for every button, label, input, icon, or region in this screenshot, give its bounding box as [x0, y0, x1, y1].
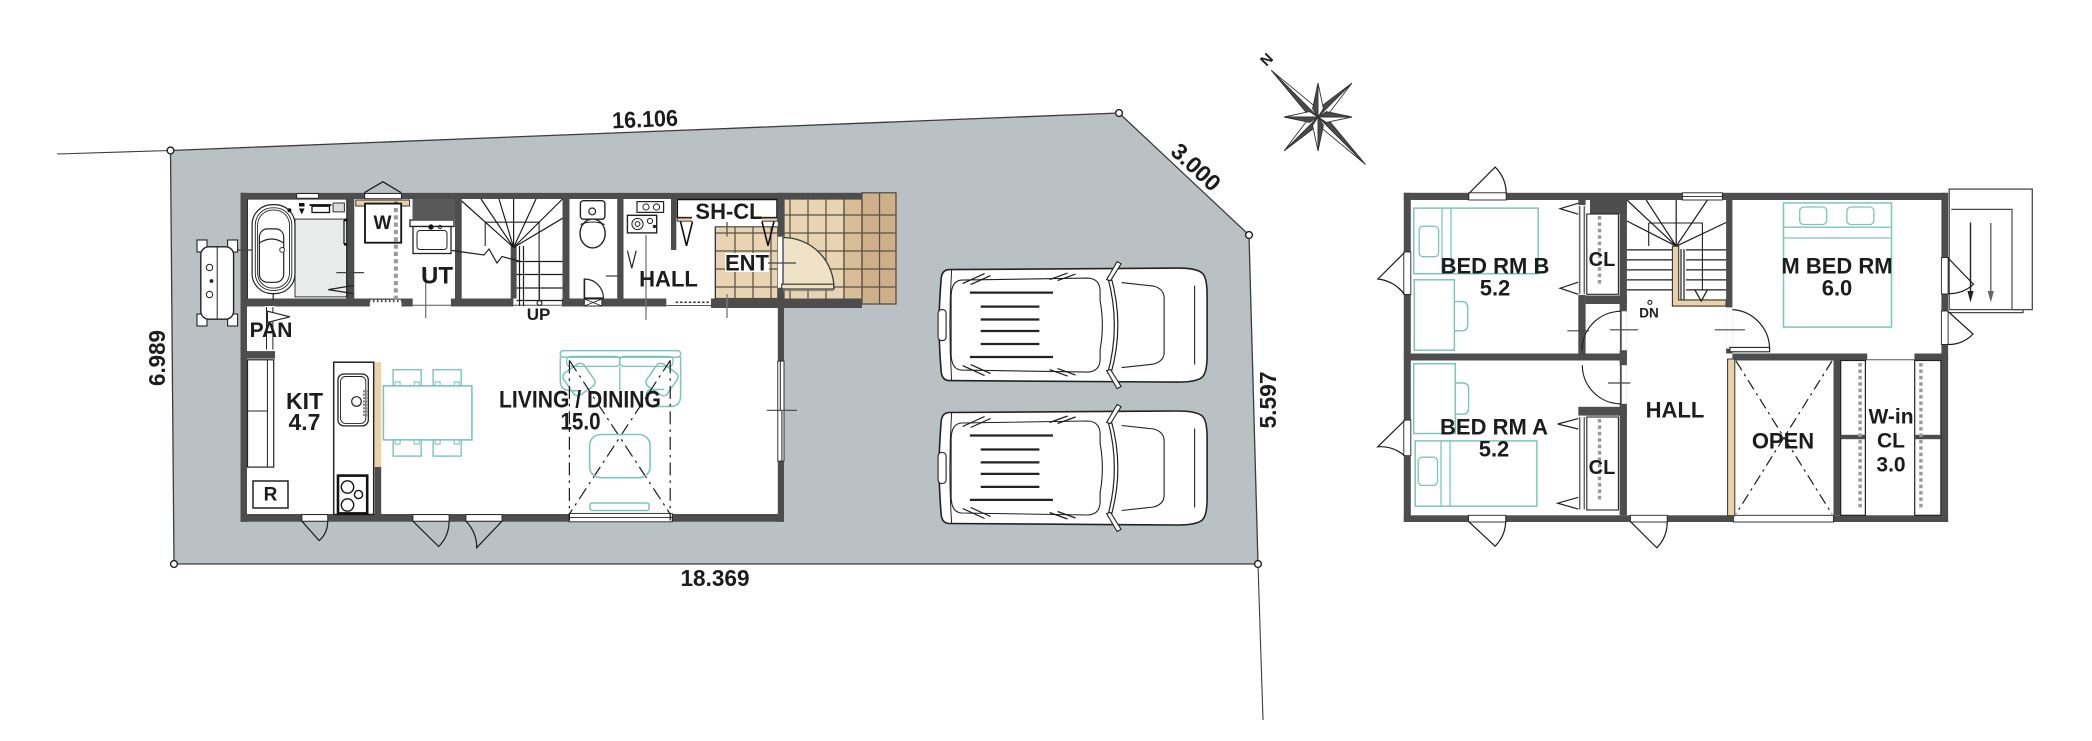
svg-text:W: W: [374, 213, 392, 234]
svg-text:6.0: 6.0: [1822, 276, 1853, 301]
svg-text:CL: CL: [1877, 430, 1905, 453]
svg-text:5.2: 5.2: [1479, 437, 1510, 462]
svg-text:SH-CL: SH-CL: [695, 199, 762, 224]
svg-text:DN: DN: [1639, 306, 1659, 321]
svg-text:CL: CL: [1589, 457, 1616, 479]
svg-text:3.0: 3.0: [1876, 454, 1905, 477]
svg-text:CL: CL: [1589, 249, 1616, 271]
svg-text:5.597: 5.597: [1255, 372, 1281, 429]
svg-text:R: R: [264, 485, 278, 506]
svg-text:OPEN: OPEN: [1752, 429, 1814, 454]
svg-text:15.0: 15.0: [561, 409, 601, 436]
svg-text:18.369: 18.369: [681, 565, 750, 591]
svg-text:4.7: 4.7: [289, 409, 321, 435]
svg-text:UP: UP: [527, 305, 551, 324]
svg-text:UT: UT: [421, 263, 453, 290]
svg-text:W-in: W-in: [1868, 406, 1913, 429]
svg-text:ENT: ENT: [725, 251, 770, 276]
svg-text:HALL: HALL: [639, 267, 698, 292]
svg-text:5.2: 5.2: [1480, 276, 1511, 301]
svg-text:6.989: 6.989: [144, 330, 170, 386]
svg-text:16.106: 16.106: [612, 105, 679, 134]
svg-text:HALL: HALL: [1646, 398, 1705, 423]
svg-text:PAN: PAN: [250, 319, 293, 342]
